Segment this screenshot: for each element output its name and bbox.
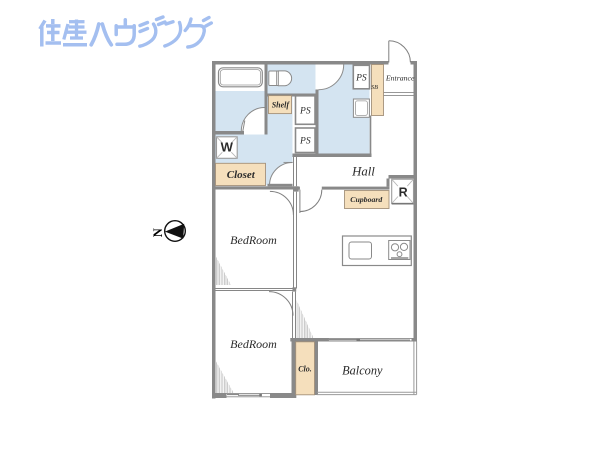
svg-text:SB: SB: [371, 84, 378, 91]
svg-text:R: R: [399, 185, 408, 199]
svg-text:PS: PS: [299, 136, 311, 146]
svg-text:N: N: [151, 228, 165, 237]
svg-text:Clo.: Clo.: [298, 364, 312, 373]
svg-text:Shelf: Shelf: [272, 101, 291, 110]
svg-text:W: W: [221, 140, 234, 155]
svg-text:BedRoom: BedRoom: [230, 337, 277, 351]
svg-text:Cupboard: Cupboard: [350, 195, 382, 204]
svg-text:Hall: Hall: [351, 164, 375, 178]
svg-text:PS: PS: [299, 106, 311, 116]
svg-text:PS: PS: [355, 73, 367, 83]
svg-text:Closet: Closet: [227, 169, 256, 181]
svg-text:Entrance: Entrance: [385, 73, 415, 82]
svg-text:BedRoom: BedRoom: [230, 233, 277, 247]
svg-text:Balcony: Balcony: [342, 364, 383, 378]
